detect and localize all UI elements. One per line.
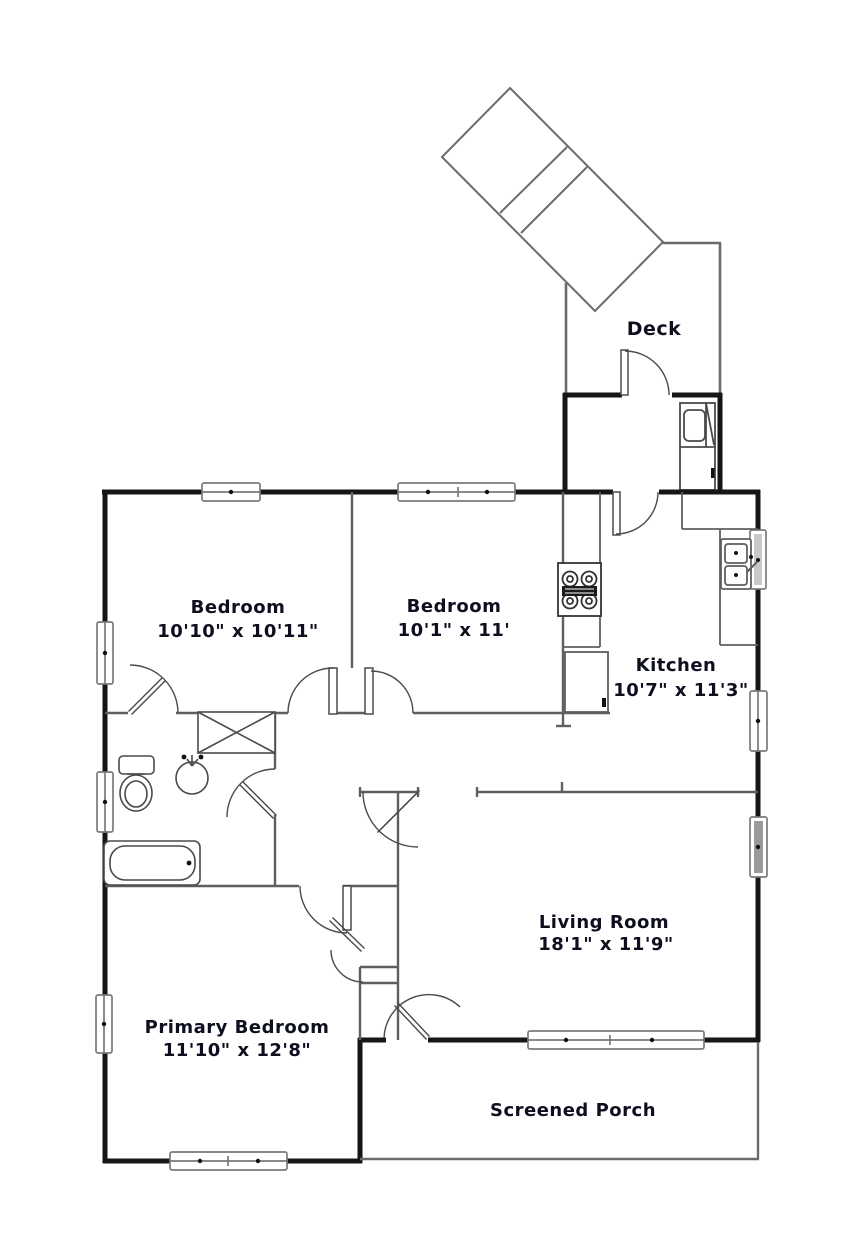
bathtub	[104, 841, 200, 885]
window-kitchen-right	[750, 530, 766, 589]
room-label-kitchen: Kitchen	[636, 655, 717, 676]
room-label-screened-porch: Screened Porch	[490, 1100, 656, 1121]
primary-bedroom-door	[300, 886, 351, 933]
window-primary-left	[96, 995, 112, 1053]
room-label-bedroom2: Bedroom	[407, 596, 502, 617]
linen-closet-x	[198, 712, 275, 753]
washer-appliance	[680, 403, 715, 490]
room-label-deck: Deck	[627, 318, 682, 340]
bathroom-sink	[176, 755, 208, 794]
window-living-right-upper	[750, 691, 767, 751]
deck-door	[621, 350, 669, 395]
room-dims-kitchen: 10'7" x 11'3"	[613, 680, 749, 701]
window-bedroom1-top	[202, 483, 260, 501]
kitchen-sink	[721, 539, 757, 589]
room-dims-primary-bedroom: 11'10" x 12'8"	[163, 1040, 312, 1061]
window-bedroom1-left	[97, 622, 113, 684]
toilet	[119, 756, 154, 811]
porch-door	[384, 995, 460, 1040]
room-dims-bedroom2: 10'1" x 11'	[398, 620, 511, 641]
window-living-right-lower	[750, 817, 767, 877]
floor-plan-canvas: Deck Bedroom 10'10" x 10'11" Bedroom 10'…	[0, 0, 860, 1250]
window-living-bottom	[528, 1031, 704, 1049]
bathroom-fixtures	[104, 712, 275, 885]
kitchen-fixtures	[558, 492, 758, 712]
floor-plan: Deck Bedroom 10'10" x 10'11" Bedroom 10'…	[0, 0, 860, 1250]
bathroom-door	[227, 769, 277, 819]
windows	[96, 483, 767, 1170]
kitchen-back-door	[613, 492, 658, 535]
room-dims-bedroom1: 10'10" x 10'11"	[157, 621, 319, 642]
deck-walkway-stairs	[442, 88, 663, 311]
bedroom1-ensuite-door	[129, 665, 179, 715]
window-primary-bottom	[170, 1152, 287, 1170]
window-bedroom2-top	[398, 483, 515, 501]
window-bathroom-left	[97, 772, 113, 832]
room-label-bedroom1: Bedroom	[191, 597, 286, 618]
stove	[558, 563, 601, 616]
room-label-living-room: Living Room	[539, 912, 669, 933]
hall-kitchen-door	[363, 791, 420, 848]
bedroom1-door	[288, 668, 337, 714]
room-label-primary-bedroom: Primary Bedroom	[145, 1017, 330, 1038]
refrigerator	[565, 652, 608, 712]
outer-walls	[102, 490, 760, 1163]
bedroom2-door	[365, 668, 413, 714]
room-dims-living-room: 18'1" x 11'9"	[538, 934, 674, 955]
